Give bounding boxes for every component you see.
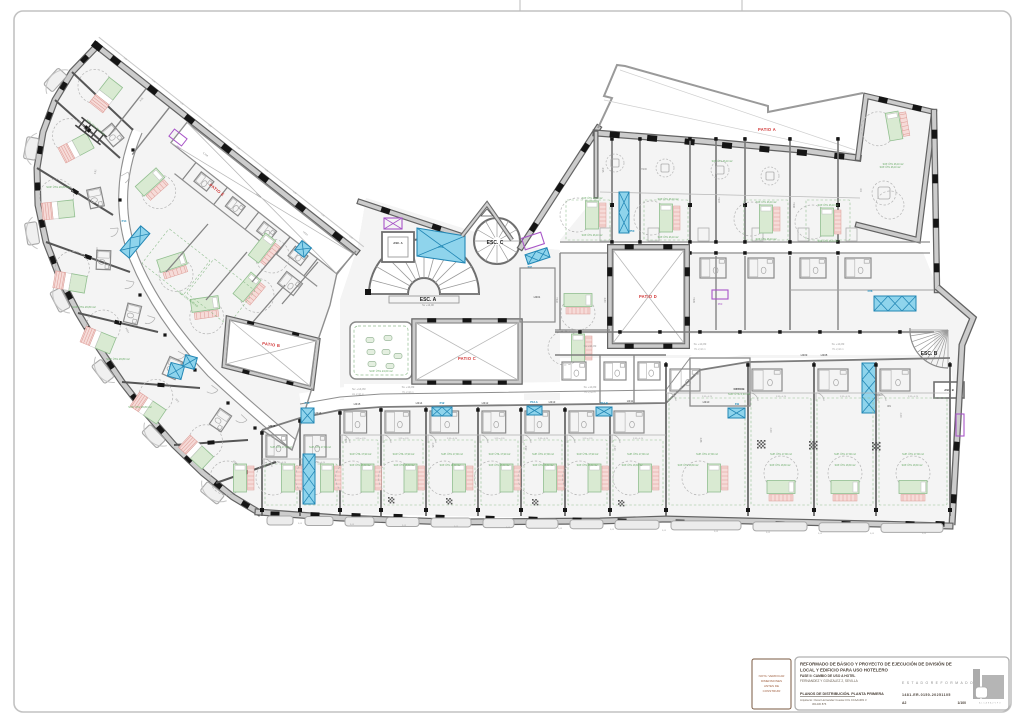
svg-text:4,05: 4,05 xyxy=(431,443,434,448)
svg-text:SUP. ÚTIL 18,30 m2: SUP. ÚTIL 18,30 m2 xyxy=(622,464,644,467)
svg-text:H312: H312 xyxy=(482,401,489,405)
svg-text:3,85 x 4,20: 3,85 x 4,20 xyxy=(633,438,644,440)
svg-text:H208: H208 xyxy=(792,202,795,208)
svg-text:H316: H316 xyxy=(315,411,322,415)
svg-text:P03: P03 xyxy=(718,302,723,306)
svg-text:Sv +14,83: Sv +14,83 xyxy=(584,385,597,389)
svg-text:SUP. ÚTIL 26,10 m2: SUP. ÚTIL 26,10 m2 xyxy=(880,166,902,169)
svg-text:SUP. ÚTIL 17,90 m2: SUP. ÚTIL 17,90 m2 xyxy=(627,453,649,456)
svg-text:4,00: 4,00 xyxy=(899,413,902,418)
svg-text:SUP. ÚTIL 26,10 m2: SUP. ÚTIL 26,10 m2 xyxy=(756,201,778,204)
svg-text:ANTES DE: ANTES DE xyxy=(764,684,779,688)
svg-text:P12: P12 xyxy=(440,401,445,405)
svg-text:3,85 x 4,20: 3,85 x 4,20 xyxy=(583,438,594,440)
svg-text:H305: H305 xyxy=(692,297,695,303)
svg-text:SUP. ÚTIL 17,90 m2: SUP. ÚTIL 17,90 m2 xyxy=(834,453,856,456)
svg-text:H206: H206 xyxy=(641,168,647,171)
svg-text:Sv +14,83: Sv +14,83 xyxy=(584,344,597,348)
svg-text:SUP. ÚTIL 18,30 m2: SUP. ÚTIL 18,30 m2 xyxy=(770,464,792,467)
svg-text:SUP. ÚTIL 26,10 m2: SUP. ÚTIL 26,10 m2 xyxy=(818,240,840,243)
svg-text:SUP. ÚTIL 17,90 m2: SUP. ÚTIL 17,90 m2 xyxy=(770,453,792,456)
svg-text:SUP. ÚTIL 17,90 m2: SUP. ÚTIL 17,90 m2 xyxy=(309,446,331,449)
svg-text:H314: H314 xyxy=(416,401,423,405)
svg-text:SUP. ÚTIL 18,30 m2: SUP. ÚTIL 18,30 m2 xyxy=(835,464,857,467)
svg-text:HL 2,42 m: HL 2,42 m xyxy=(694,348,705,351)
svg-text:P28: P28 xyxy=(868,289,873,293)
svg-text:H318: H318 xyxy=(269,424,276,428)
svg-text:H309: H309 xyxy=(801,353,808,357)
svg-text:1481-ER-0150-20251105: 1481-ER-0150-20251105 xyxy=(902,693,951,697)
svg-text:SUP. ÚTIL 17,90 m2: SUP. ÚTIL 17,90 m2 xyxy=(441,453,463,456)
svg-text:H315: H315 xyxy=(354,402,361,406)
svg-text:HL 2,42 m: HL 2,42 m xyxy=(584,391,595,394)
svg-text:SUP. ÚTIL 18,30 m2: SUP. ÚTIL 18,30 m2 xyxy=(350,464,372,467)
svg-text:3,85 x 4,20: 3,85 x 4,20 xyxy=(399,438,410,440)
svg-text:ESC. A: ESC. A xyxy=(420,297,437,303)
svg-text:P14: P14 xyxy=(122,219,127,223)
svg-text:ASC. B: ASC. B xyxy=(944,388,953,392)
svg-text:3,85 x 4,20: 3,85 x 4,20 xyxy=(908,396,919,398)
svg-text:SUP. ÚTIL 26,10 m2: SUP. ÚTIL 26,10 m2 xyxy=(582,197,604,200)
svg-text:Sv +14,83: Sv +14,83 xyxy=(694,342,707,346)
svg-text:SUP. ÚTIL 17,90 m2: SUP. ÚTIL 17,90 m2 xyxy=(902,453,924,456)
svg-text:3,85 x 4,20: 3,85 x 4,20 xyxy=(776,396,787,398)
svg-text:H313: H313 xyxy=(549,400,556,404)
svg-text:SUP. ÚTIL 17,90 m2: SUP. ÚTIL 17,90 m2 xyxy=(696,453,718,456)
svg-text:NOTA: VERIFICAR: NOTA: VERIFICAR xyxy=(759,674,786,678)
svg-text:P12.A: P12.A xyxy=(530,400,538,404)
svg-text:FERNANDEZ Y GONZALEZ 2, SEVILL: FERNANDEZ Y GONZALEZ 2, SEVILLA xyxy=(800,679,859,683)
svg-text:3,85 x 4,20: 3,85 x 4,20 xyxy=(447,438,458,440)
svg-text:Sv +14,83: Sv +14,83 xyxy=(832,342,845,346)
svg-text:PATIO D: PATIO D xyxy=(639,294,657,299)
svg-text:LOCAL Y EDIFICIO PARA USO HOTE: LOCAL Y EDIFICIO PARA USO HOTELERO xyxy=(800,668,888,673)
svg-text:HL 2,42 m: HL 2,42 m xyxy=(832,348,843,351)
svg-text:P12.B: P12.B xyxy=(600,401,608,405)
svg-text:SUP. ÚTIL 18,30 m2: SUP. ÚTIL 18,30 m2 xyxy=(678,464,700,467)
svg-text:SUP. ÚTIL 26,10 m2: SUP. ÚTIL 26,10 m2 xyxy=(756,238,778,241)
svg-text:4,10: 4,10 xyxy=(613,446,616,451)
svg-text:OFFICE: OFFICE xyxy=(734,387,745,391)
svg-text:A L C A R A Z V P O: A L C A R A Z V P O xyxy=(979,702,1001,705)
svg-text:1/100: 1/100 xyxy=(958,701,967,705)
svg-text:3,85 x 4,20: 3,85 x 4,20 xyxy=(356,438,367,440)
svg-text:3,85 x 4,20: 3,85 x 4,20 xyxy=(840,396,851,398)
svg-text:SUP. ÚTIL 17,90 m2: SUP. ÚTIL 17,90 m2 xyxy=(532,453,554,456)
svg-text:PATIO C: PATIO C xyxy=(458,356,476,361)
svg-text:HL 2,42 m: HL 2,42 m xyxy=(402,391,413,394)
svg-text:SUP. ÚTIL 18,30 m2: SUP. ÚTIL 18,30 m2 xyxy=(489,464,511,467)
svg-text:3,55: 3,55 xyxy=(601,168,604,173)
svg-text:Sv +14,83: Sv +14,83 xyxy=(402,385,415,389)
svg-text:H302: H302 xyxy=(555,297,558,303)
svg-text:PLANOS DE DISTRIBUCIÓN. PLANTA: PLANOS DE DISTRIBUCIÓN. PLANTA PRIMERA xyxy=(800,691,884,696)
svg-text:PATIO A: PATIO A xyxy=(758,127,776,132)
svg-text:SUP. ÚTIL 17,90 m2: SUP. ÚTIL 17,90 m2 xyxy=(489,453,511,456)
svg-text:3,85 x 4,20: 3,85 x 4,20 xyxy=(702,396,713,398)
svg-text:3,88: 3,88 xyxy=(699,438,702,443)
svg-text:H310: H310 xyxy=(703,400,710,404)
svg-text:CONSTRUIR: CONSTRUIR xyxy=(763,689,782,693)
svg-text:SUP. ÚTIL 18,30 m2: SUP. ÚTIL 18,30 m2 xyxy=(440,464,462,467)
svg-text:SUP. ÚTIL 18,30 m2: SUP. ÚTIL 18,30 m2 xyxy=(533,464,555,467)
svg-text:REFORMADO DE BÁSICO Y PROYECTO: REFORMADO DE BÁSICO Y PROYECTO DE EJECUC… xyxy=(800,662,952,667)
svg-text:3,92: 3,92 xyxy=(524,446,527,451)
svg-text:3,80: 3,80 xyxy=(603,298,606,303)
svg-text:SUP. ÚTIL 26,10 m2: SUP. ÚTIL 26,10 m2 xyxy=(883,163,905,166)
svg-text:4,00: 4,00 xyxy=(769,428,772,433)
svg-text:Arquitecto: Oscar Hernandez Cu: Arquitecto: Oscar Hernandez Cuesta COL C… xyxy=(800,698,867,702)
svg-text:E S T A D O R E F O R M A D: E S T A D O R E F O R M A D O xyxy=(902,681,974,685)
svg-text:SUP. ÚTIL 26,10 m2: SUP. ÚTIL 26,10 m2 xyxy=(582,234,604,237)
svg-text:3,85 x 4,20: 3,85 x 4,20 xyxy=(538,438,549,440)
svg-text:FASE II: CAMBIO DE USO A HOTEL: FASE II: CAMBIO DE USO A HOTEL xyxy=(800,674,855,678)
svg-text:SUP. ÚTIL 18,30 m2: SUP. ÚTIL 18,30 m2 xyxy=(902,464,924,467)
svg-text:P50: P50 xyxy=(630,229,635,233)
svg-text:H308: H308 xyxy=(821,353,828,357)
svg-text:SUP. ÚTIL 17,90 m2: SUP. ÚTIL 17,90 m2 xyxy=(350,453,372,456)
svg-text:SUP. ÚTIL 18,30 m2: SUP. ÚTIL 18,30 m2 xyxy=(577,464,599,467)
svg-text:ASC. A: ASC. A xyxy=(393,241,402,245)
svg-text:H301: H301 xyxy=(534,295,541,299)
svg-text:A2: A2 xyxy=(902,701,906,705)
svg-text:SUP. ÚTIL 26,10 m2: SUP. ÚTIL 26,10 m2 xyxy=(818,204,840,207)
svg-text:3,85 x 4,20: 3,85 x 4,20 xyxy=(315,462,326,464)
svg-text:ESC. C: ESC. C xyxy=(487,240,504,246)
svg-text:SUP. ÚTIL 18,30 m2: SUP. ÚTIL 18,30 m2 xyxy=(394,464,416,467)
svg-text:DIMENSIONES: DIMENSIONES xyxy=(761,679,782,683)
svg-text:ESC. B: ESC. B xyxy=(921,351,938,357)
svg-text:SUP. ÚTIL 17,90 m2: SUP. ÚTIL 17,90 m2 xyxy=(393,453,415,456)
svg-text:301430 876: 301430 876 xyxy=(812,702,827,706)
svg-text:3,85 x 4,20: 3,85 x 4,20 xyxy=(276,462,287,464)
svg-text:Sv +14,00: Sv +14,00 xyxy=(422,303,434,307)
svg-text:SUP. ÚTIL 26,10 m2: SUP. ÚTIL 26,10 m2 xyxy=(658,198,680,201)
svg-text:SUP. ÚTIL 17,90 m2: SUP. ÚTIL 17,90 m2 xyxy=(577,453,599,456)
svg-text:H311: H311 xyxy=(627,399,634,403)
svg-text:H207: H207 xyxy=(717,197,720,203)
svg-text:Sv +14,83: Sv +14,83 xyxy=(352,387,366,391)
svg-text:P22: P22 xyxy=(439,245,444,249)
svg-text:SUP. ÚTIL 26,10 m2: SUP. ÚTIL 26,10 m2 xyxy=(658,236,680,239)
svg-text:H315: H315 xyxy=(344,437,347,443)
svg-text:P16: P16 xyxy=(305,401,310,405)
svg-text:SUP. ÚTIL 17,90 m2: SUP. ÚTIL 17,90 m2 xyxy=(270,446,292,449)
svg-text:3,85 x 4,20: 3,85 x 4,20 xyxy=(495,438,506,440)
